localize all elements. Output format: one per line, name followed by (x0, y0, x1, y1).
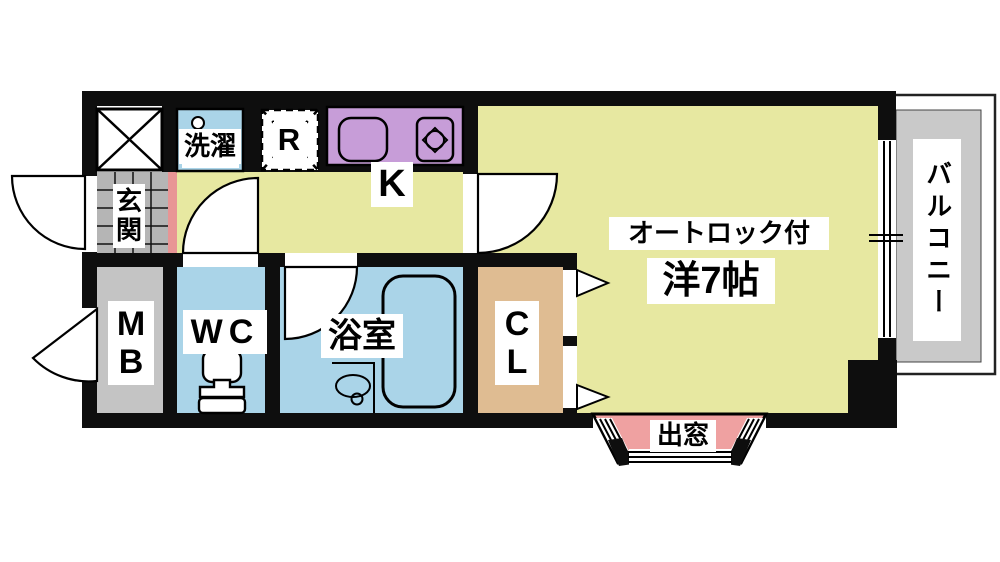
closet-label: C L (495, 301, 539, 385)
laundry-label: 洗濯 (179, 129, 241, 164)
bay-window-label: 出窓 (650, 420, 716, 452)
faucet-icon (192, 117, 204, 129)
kitchen-label: K (371, 162, 413, 207)
refrigerator-label: R (274, 121, 304, 159)
bathroom-label: 浴室 (321, 314, 403, 358)
main-room-label: 洋7帖 (647, 258, 775, 304)
meter-box-label: M B (108, 301, 154, 385)
shaft-box (97, 109, 162, 170)
floor-plan-drawing (0, 0, 1000, 562)
meter-box-door-swing (33, 309, 97, 381)
entrance-step-strip (168, 172, 177, 253)
entrance-label: 玄 関 (113, 184, 145, 248)
toilet-label: WC (183, 310, 267, 354)
floor-plan-canvas: 洗濯 R K 玄 関 M B WC 浴室 C L オートロック付 洋7帖 出窓 … (0, 0, 1000, 562)
entrance-door-swing (12, 176, 85, 249)
kitchen-counter (327, 107, 463, 165)
corner-column (848, 360, 897, 428)
balcony-label: バルコニー (913, 139, 961, 341)
autolock-label: オートロック付 (609, 217, 829, 250)
